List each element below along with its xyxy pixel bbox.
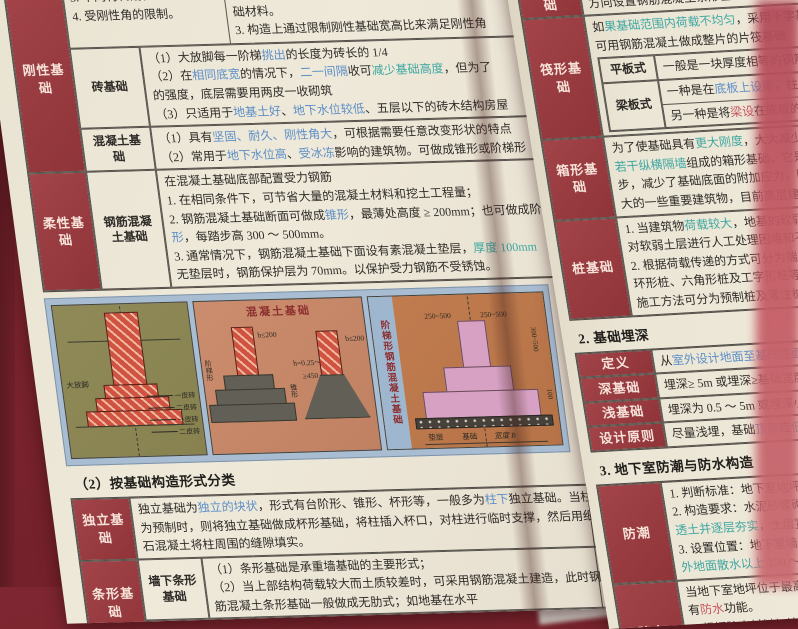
left-page: 刚性基础 3. 不同材料刚性角不同；4. 受刚性角的限制。 面不产生拉应力，最大…: [0, 0, 613, 624]
text-line: 4. 受刚性角的限制。: [71, 3, 221, 26]
concrete-step: [209, 403, 297, 423]
dim-right: 100: [545, 388, 554, 399]
row-label-design-principle: 设计原则: [588, 423, 667, 452]
dim-450: ≥450: [302, 371, 319, 380]
row-label-column-strip-foundation: 柱下钢筋: [146, 619, 213, 624]
stepped-rc-foundation-panel: 阶梯形钢筋混凝土基础 250~500 250~500 300~500 100 垫…: [367, 291, 564, 450]
column-shape: [457, 320, 491, 369]
stepped-rc-foundation-diagram: 250~500 250~500 300~500 100 垫层 基础 宽度 B: [392, 292, 563, 448]
dim-b200: b≤200: [257, 330, 277, 340]
brick-course-labels: 一皮砖 二皮砖 一皮砖 二皮砖: [146, 390, 201, 437]
book-photo: { "left_page": { "rigid_sidebar_label": …: [0, 0, 798, 587]
label-tapered: 锥形: [288, 383, 300, 397]
blurred-book-edge: [756, 0, 798, 587]
foundation-figures: 大放脚 一皮砖 二皮砖 一皮砖 二皮砖 混凝土基础 阶梯形 h=0.25～1.5…: [44, 284, 571, 466]
dim-right: 300~500: [529, 327, 540, 352]
course-label: 二皮砖: [148, 402, 198, 413]
wall-stub-shape: [315, 330, 343, 377]
dim-top: 250~500: [480, 309, 508, 319]
brick-foundation-diagram: 大放脚 一皮砖 二皮砖 一皮砖 二皮砖: [51, 301, 208, 459]
tapered-concrete-shape: [299, 374, 371, 420]
rc-foundation-content: 在混凝土基础底部配置受力钢筋1. 在相同条件下，可节省大量的混凝土材料和挖土工程…: [156, 159, 570, 288]
course-label: 二皮砖: [151, 426, 201, 437]
text-line: 2. 地下室防水做法根据材料的不: [693, 626, 798, 629]
dim-b200: b≤200: [345, 333, 365, 343]
continued-row-left-cell: 3. 不同材料刚性角不同；4. 受刚性角的限制。: [62, 0, 231, 48]
callout-daputjiao: 大放脚: [66, 379, 90, 391]
course-label: 一皮砖: [149, 414, 199, 425]
label-foundation: 基础: [462, 431, 478, 442]
row-label-concrete-foundation: 混凝土基础: [80, 127, 156, 172]
row-label-beam-plate: 梁板式: [602, 80, 665, 131]
row-label-wall-strip-foundation: 墙下条形基础: [138, 557, 210, 621]
label-width-b: 宽度 B: [493, 430, 516, 442]
construction-form-table: 独立基础 独立基础为独立的块状，形式有台阶形、锥形、杯形等，一般多为柱下独立基础…: [70, 484, 606, 624]
course-label: 一皮砖: [146, 390, 196, 401]
row-label-flat-plate: 平板式: [598, 56, 658, 84]
diagram-title: 混凝土基础: [193, 300, 363, 321]
wall-strip-foundation-content: （1）条形基础是承重墙基础的主要形式；（2）当上部结构荷载较大而土质较差时，可采…: [201, 546, 612, 619]
rigid-flexible-foundation-table: 刚性基础 3. 不同材料刚性角不同；4. 受刚性角的限制。 面不产生拉应力，最大…: [2, 0, 559, 292]
concrete-foundation-diagram: 混凝土基础 阶梯形 h=0.25～1.5b ≥450 b≤200 锥形 b≤20…: [192, 296, 382, 455]
wall-stub-shape: [230, 326, 259, 377]
brick-foundation-content: （1）大放脚每一阶梯挑出的长度为砖长的 1/4（2）在相同底宽的情况下，二一间隔…: [139, 35, 548, 126]
label-bedding: 垫层: [428, 432, 444, 443]
dim-top: 250~500: [424, 311, 452, 321]
label-stepped: 阶梯形: [203, 360, 216, 381]
row-label-brick-foundation: 砖基础: [70, 47, 150, 129]
brick-wall-shape: [104, 312, 148, 387]
sidebar-label-independent-foundation: 独立基础: [72, 497, 138, 560]
